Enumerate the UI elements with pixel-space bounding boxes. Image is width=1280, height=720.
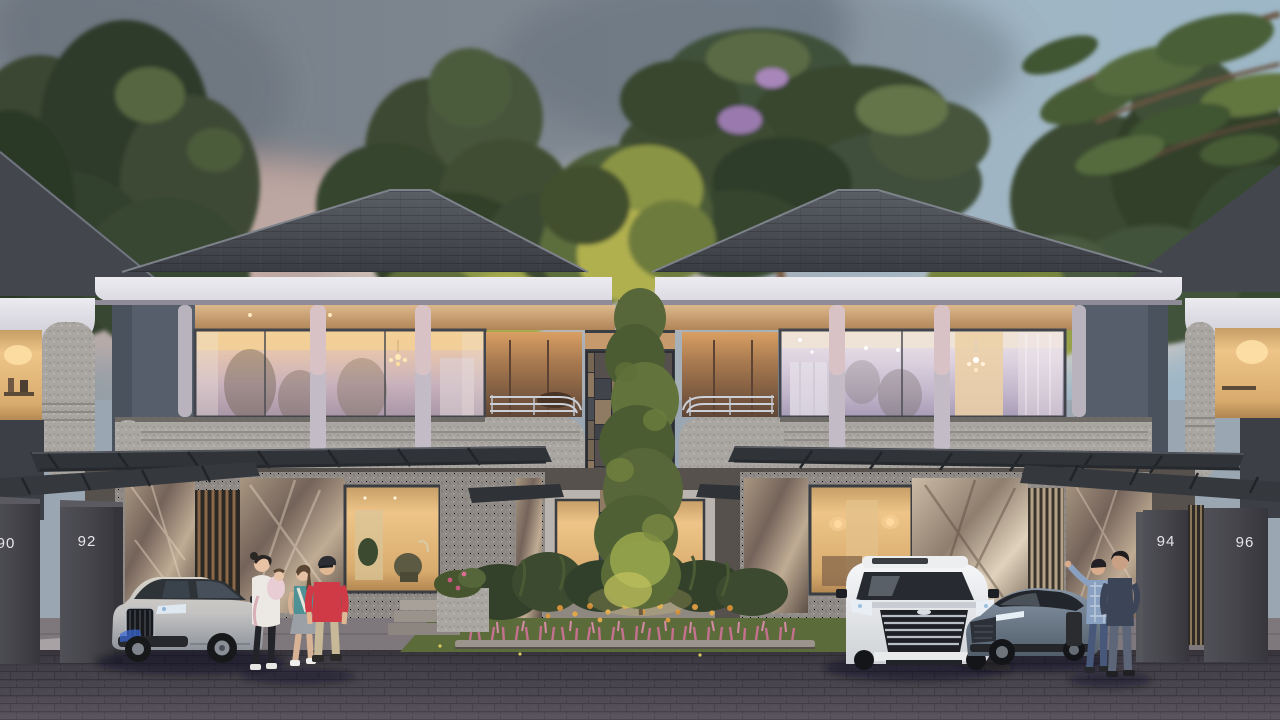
architectural-render: 90 92 94 96 xyxy=(0,0,1280,720)
right-house-upper-windows xyxy=(780,330,1065,421)
house-number-96: 96 xyxy=(1236,534,1255,551)
pillar-94: 94 xyxy=(1136,510,1189,662)
house-number-94: 94 xyxy=(1157,533,1176,550)
house-number-90: 90 xyxy=(0,535,15,552)
left-ground-window xyxy=(345,486,440,592)
planter-wall xyxy=(434,568,489,632)
render-canvas: 90 92 94 96 xyxy=(0,0,1280,720)
left-house-upper-windows xyxy=(195,330,485,426)
pillar-96: 96 xyxy=(1188,505,1268,662)
pillar-90: 90 xyxy=(0,496,40,664)
garden-kerb xyxy=(455,640,815,648)
right-slatted-screen xyxy=(1028,488,1064,600)
bag-on-ground xyxy=(1066,612,1082,646)
house-number-92: 92 xyxy=(78,533,97,550)
